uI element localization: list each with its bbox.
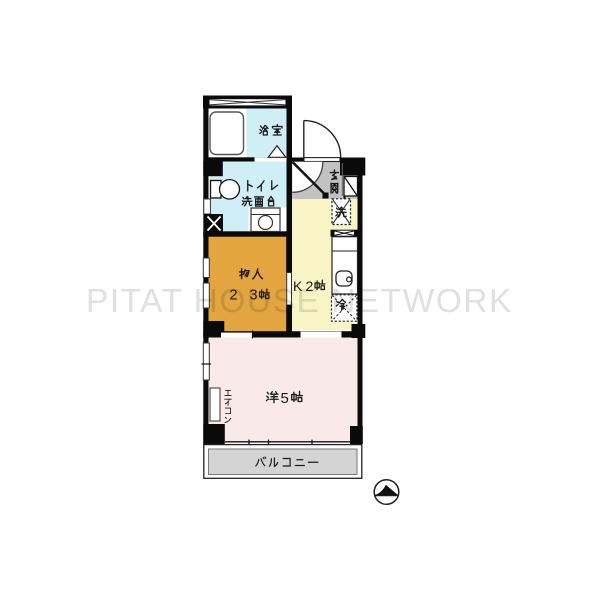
svg-text:5: 5 bbox=[281, 390, 289, 407]
svg-text:PITAT HOUSE NETWORK: PITAT HOUSE NETWORK bbox=[86, 283, 513, 320]
